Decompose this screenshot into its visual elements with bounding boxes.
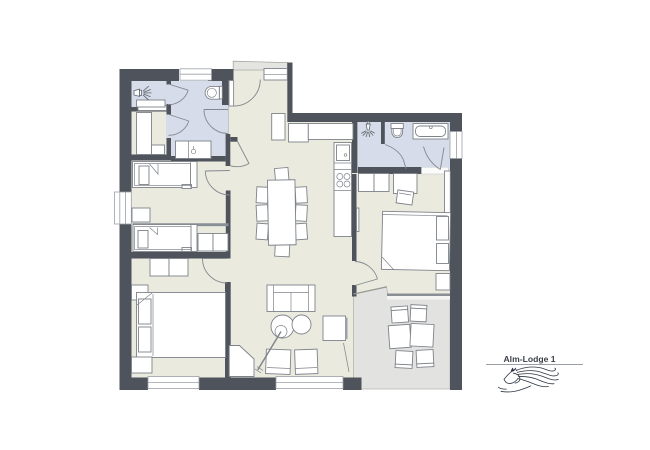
svg-text:Alm-Lodge 1: Alm-Lodge 1 xyxy=(503,354,555,364)
